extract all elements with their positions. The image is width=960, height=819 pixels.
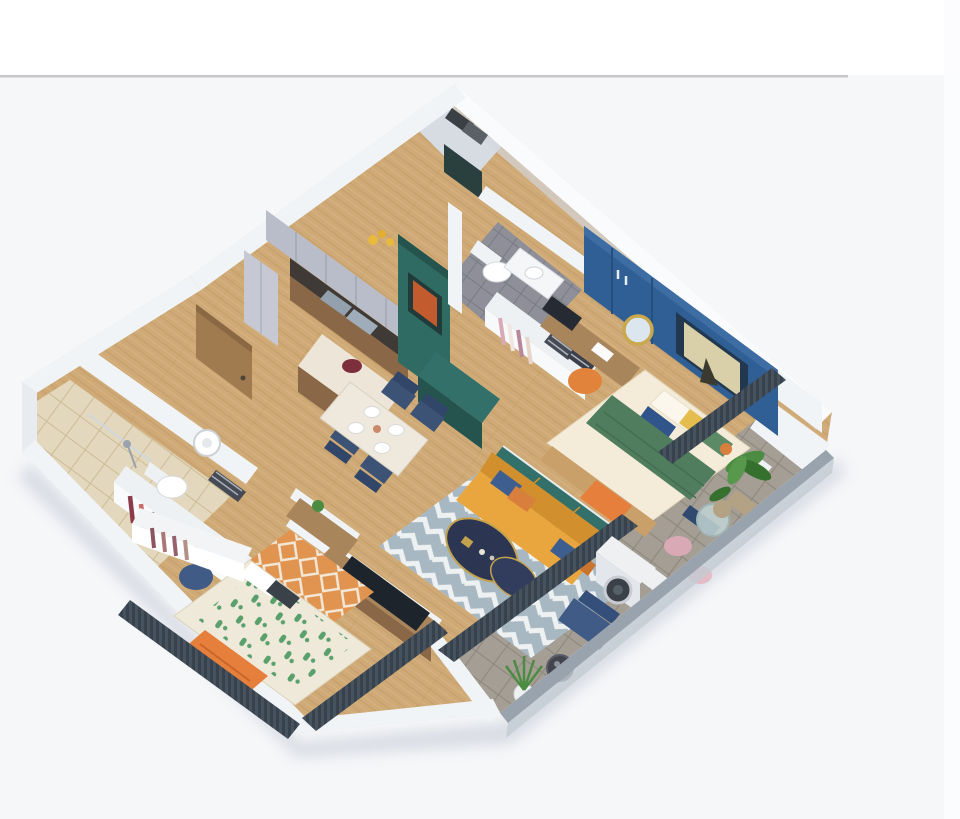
round-mirror [624,316,652,344]
ensuite-wall-left [448,202,462,314]
divider-line [0,75,848,78]
right-edge-strip [944,0,960,819]
orange-pouf [568,368,602,394]
toilet2 [157,476,187,498]
desk2-plant [312,500,324,512]
basin-drain [202,438,212,448]
pillow-orange-small [720,443,732,455]
pink-seat-1 [664,536,692,556]
basin [525,267,543,279]
floor-plan-render [0,0,960,819]
serving-bowl [342,359,362,373]
door-handle [241,376,246,381]
page [0,0,960,819]
top-band [0,0,960,75]
